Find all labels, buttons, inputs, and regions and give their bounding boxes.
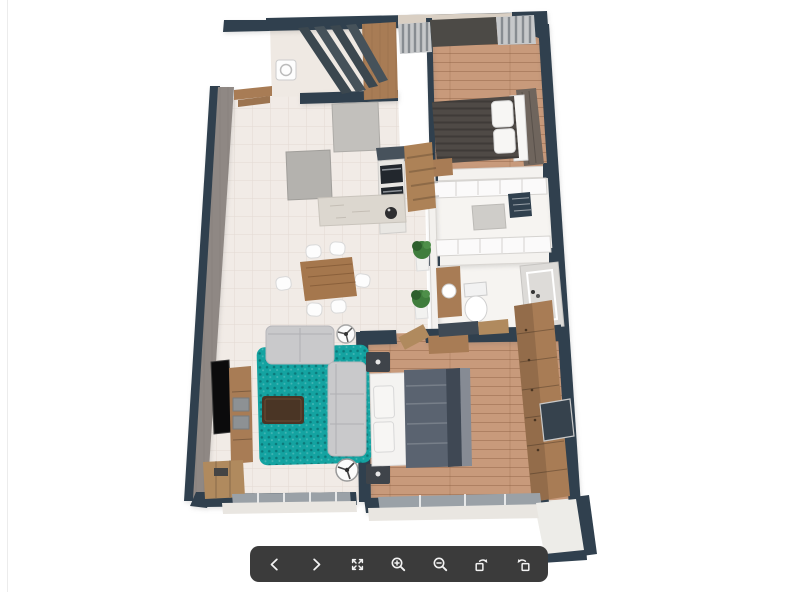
master-bed xyxy=(370,368,472,468)
standing-fan xyxy=(336,459,358,481)
counter-panel xyxy=(286,150,332,200)
dining-table xyxy=(300,257,357,301)
wall-tv-panel xyxy=(540,399,574,441)
guest-bed xyxy=(432,95,528,164)
toolbar-fullscreen-button[interactable] xyxy=(344,550,372,578)
zoom-out-icon xyxy=(434,558,446,570)
chevron-right-icon xyxy=(314,559,319,569)
tv-console xyxy=(229,366,253,464)
toolbar-zoom-in-button[interactable] xyxy=(385,550,413,578)
duct-shaft xyxy=(508,192,532,218)
washing-machine xyxy=(276,60,296,80)
coffee-table xyxy=(262,396,304,424)
sideboard xyxy=(203,460,245,499)
living-window xyxy=(222,492,357,514)
viewer-toolbar xyxy=(250,546,548,582)
rotate-ccw-icon xyxy=(517,559,528,570)
toolbar-previous-button[interactable] xyxy=(261,550,289,578)
floorplan-3d-render xyxy=(0,0,795,592)
nightstand-top xyxy=(366,352,390,372)
chevron-left-icon xyxy=(272,559,277,569)
vanity xyxy=(436,266,462,318)
toilet xyxy=(464,282,487,322)
fridge-panel xyxy=(332,102,380,152)
master-window xyxy=(368,493,549,521)
floorplan-viewer-canvas[interactable] xyxy=(0,0,795,592)
zoom-in-icon xyxy=(393,558,405,570)
nightstand-bottom xyxy=(366,464,390,484)
wall-tv xyxy=(211,360,232,434)
toolbar-next-button[interactable] xyxy=(302,550,330,578)
closet-counter xyxy=(472,204,506,230)
window-blackout xyxy=(430,17,498,47)
toolbar-rotate-counterclockwise-button[interactable] xyxy=(509,550,537,578)
coffee-machine xyxy=(385,207,397,219)
expand-icon xyxy=(353,559,363,569)
toolbar-zoom-out-button[interactable] xyxy=(426,550,454,578)
rotate-cw-icon xyxy=(477,559,488,570)
toolbar-rotate-clockwise-button[interactable] xyxy=(468,550,496,578)
oven xyxy=(380,164,403,184)
floor-lamp xyxy=(337,325,355,343)
